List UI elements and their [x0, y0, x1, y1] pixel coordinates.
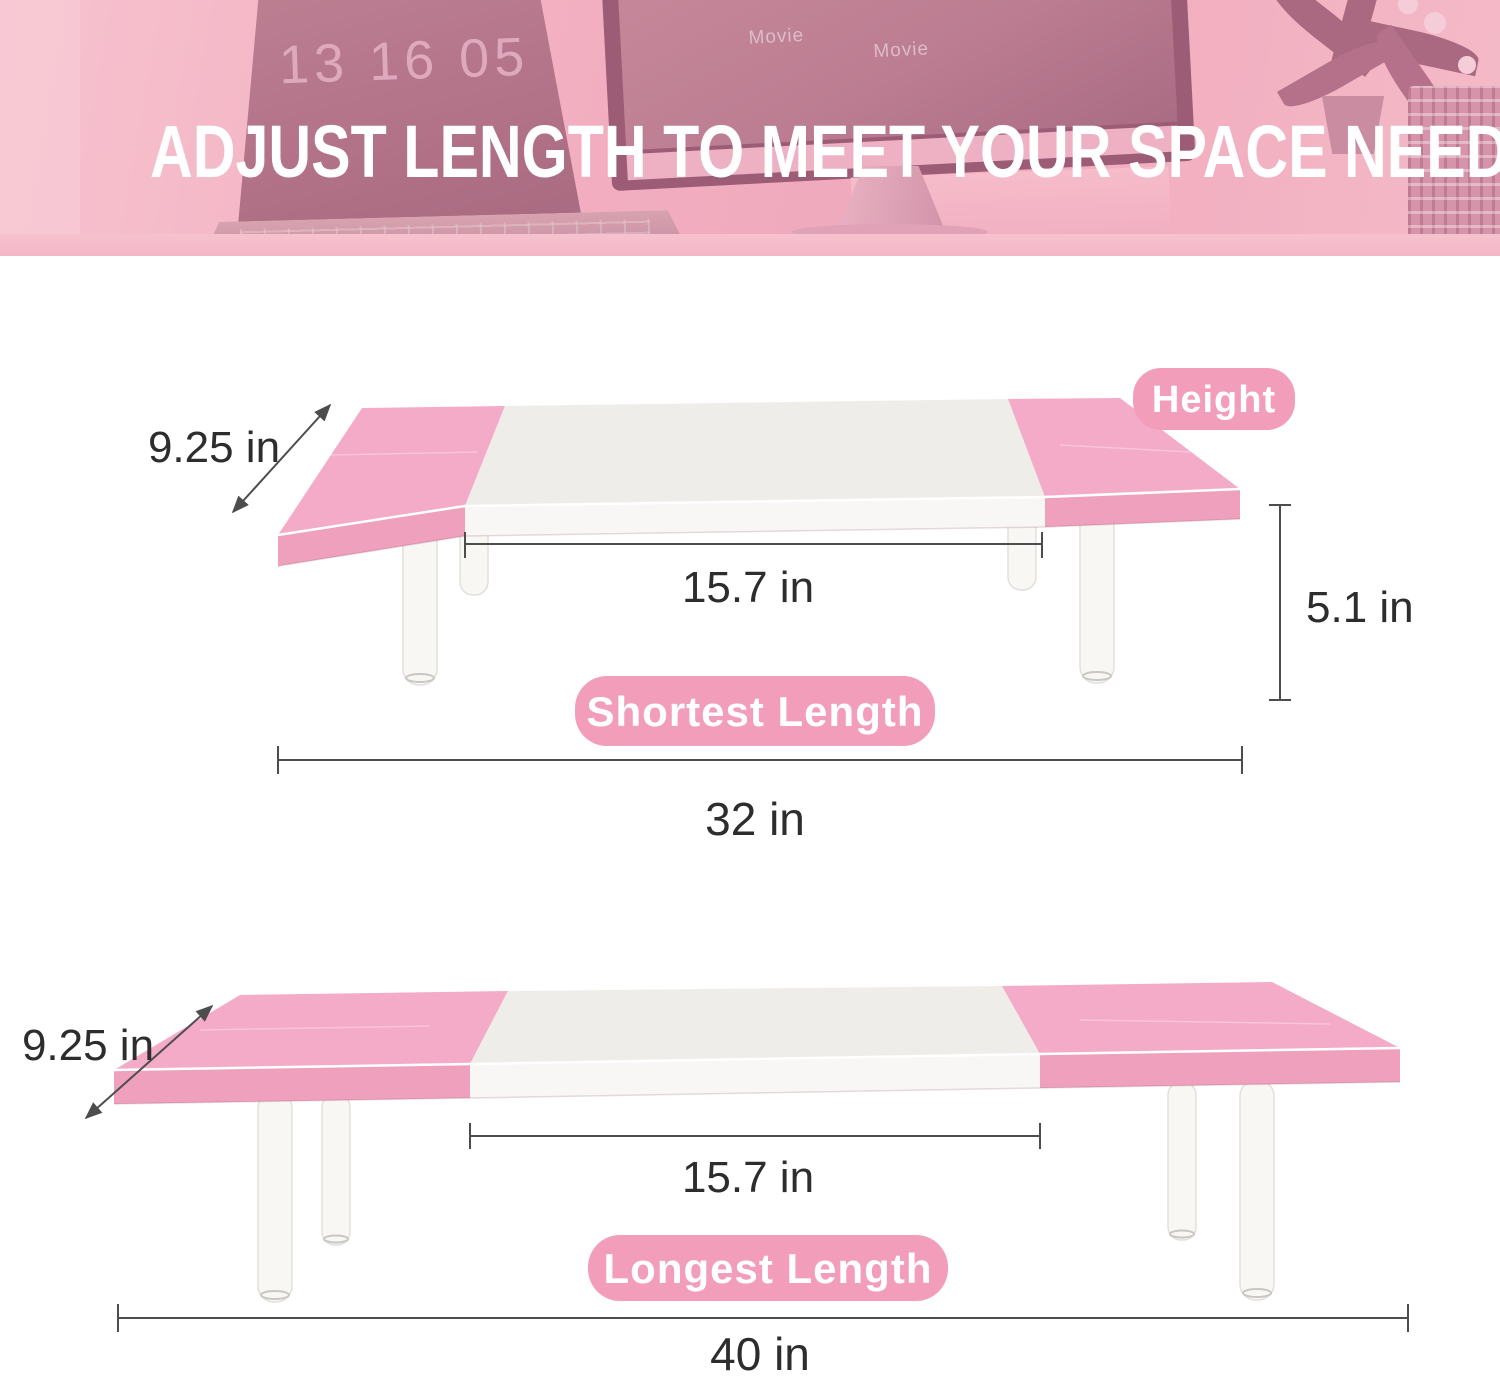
diagram-shortest-length: 9.25 in Height 15.7 in 5.1 in Shortest L… — [0, 360, 1500, 860]
height-value-label: 5.1 in — [1306, 583, 1414, 632]
total-length-label: 40 in — [710, 1328, 810, 1379]
height-badge-label: Height — [1152, 379, 1276, 421]
pink-extension-left-top — [114, 991, 508, 1070]
pink-extension-right-top — [1002, 982, 1400, 1054]
depth-dimension-label: 9.25 in — [148, 423, 280, 472]
monitor-movie-label: Movie — [974, 0, 1031, 2]
white-base-top — [465, 399, 1045, 506]
banner-headline: ADJUST LENGTH TO MEET YOUR SPACE NEED — [150, 112, 1350, 192]
flower — [1458, 56, 1476, 74]
white-base-top — [470, 986, 1040, 1064]
platform-width-label: 15.7 in — [682, 563, 814, 612]
shortest-length-badge-label: Shortest Length — [587, 688, 924, 735]
stand-leg-back-left — [322, 1094, 350, 1245]
stand-leg-back-right — [1168, 1082, 1196, 1240]
desk-surface — [0, 234, 1500, 256]
monitor-movie-label: Movie — [748, 25, 805, 50]
banner-wall-panel — [0, 0, 80, 256]
flower — [1398, 0, 1418, 14]
monitor-movie-label: Movie — [873, 38, 930, 63]
longest-length-badge-label: Longest Length — [604, 1245, 933, 1292]
depth-dimension-label: 9.25 in — [22, 1021, 154, 1070]
flower — [1424, 12, 1446, 34]
promo-banner: 13 16 05 Movie Movie Movie Movie ADJUST … — [0, 0, 1500, 256]
stand-leg-front-right — [1240, 1080, 1274, 1300]
stand-leg-front-left — [258, 1092, 292, 1302]
total-length-label: 32 in — [705, 793, 805, 845]
diagram-longest-length: 9.25 in 15.7 in Longest Length 40 in — [0, 949, 1500, 1379]
laptop-clock-text: 13 16 05 — [231, 24, 578, 98]
platform-width-label: 15.7 in — [682, 1153, 814, 1202]
